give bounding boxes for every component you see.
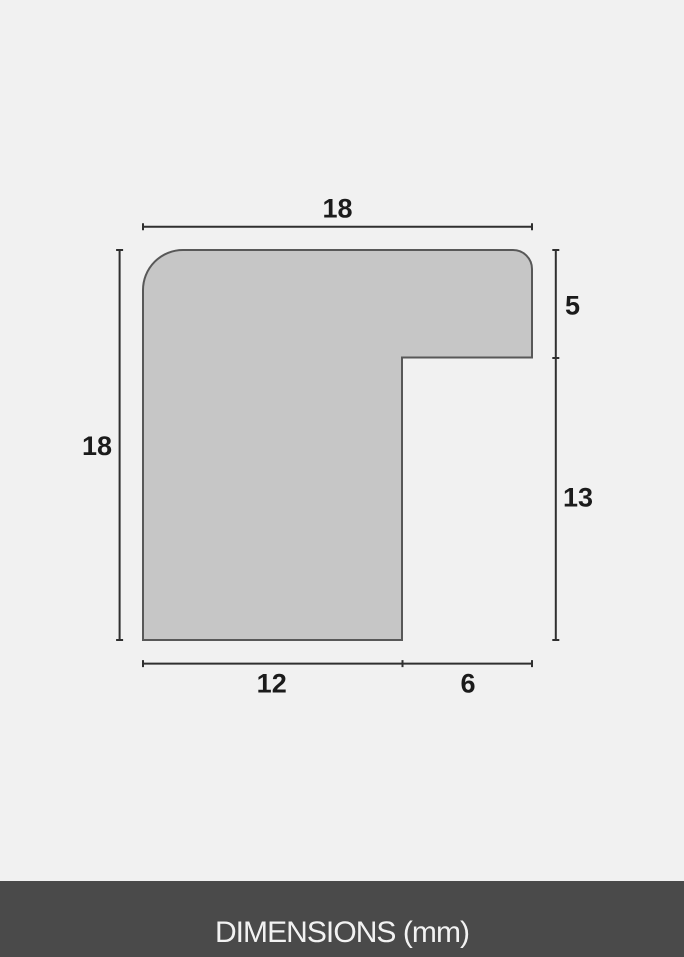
svg-text:6: 6 (460, 669, 475, 699)
svg-text:5: 5 (565, 291, 580, 321)
svg-text:12: 12 (257, 669, 287, 699)
svg-text:18: 18 (82, 431, 112, 461)
svg-text:18: 18 (322, 194, 352, 224)
svg-text:13: 13 (563, 483, 593, 513)
